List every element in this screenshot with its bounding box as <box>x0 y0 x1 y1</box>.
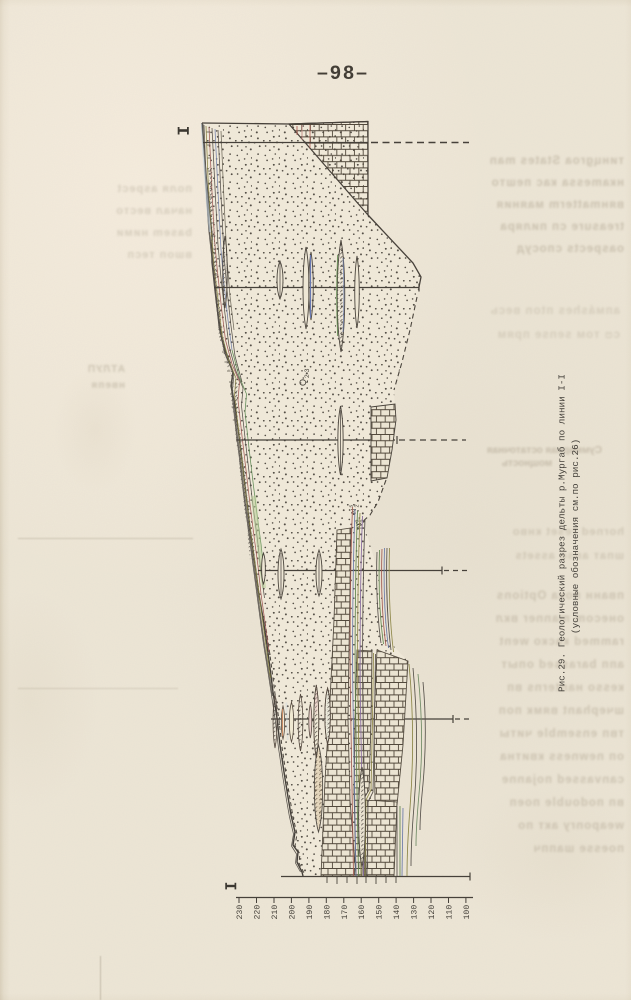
svg-text:160: 160 <box>358 905 367 920</box>
svg-text:2-3: 2-3 <box>304 368 311 378</box>
svg-text:220: 220 <box>254 905 263 920</box>
svg-text:(условные обозначения см.по ри: (условные обозначения см.по рис.26) <box>570 439 581 634</box>
svg-text:120: 120 <box>428 905 437 920</box>
svg-text:190: 190 <box>306 905 315 920</box>
svg-text:140: 140 <box>393 905 402 920</box>
svg-text:180: 180 <box>323 905 332 920</box>
svg-text:210: 210 <box>271 905 280 920</box>
svg-text:2: 2 <box>355 504 361 507</box>
svg-text:110: 110 <box>446 905 455 920</box>
svg-text:2: 2 <box>361 519 367 522</box>
svg-text:230: 230 <box>236 905 245 920</box>
svg-text:100: 100 <box>463 905 472 920</box>
svg-text:170: 170 <box>341 905 350 920</box>
svg-text:Рис.29. Геологический разрез д: Рис.29. Геологический разрез дельты р.Му… <box>557 374 568 692</box>
svg-text:–98–: –98– <box>317 62 369 84</box>
svg-text:N: N <box>349 509 358 514</box>
svg-text:Q: Q <box>298 379 308 386</box>
svg-text:200: 200 <box>288 905 297 920</box>
svg-text:s: s <box>349 505 355 508</box>
svg-text:130: 130 <box>411 905 420 920</box>
svg-text:150: 150 <box>376 905 385 920</box>
